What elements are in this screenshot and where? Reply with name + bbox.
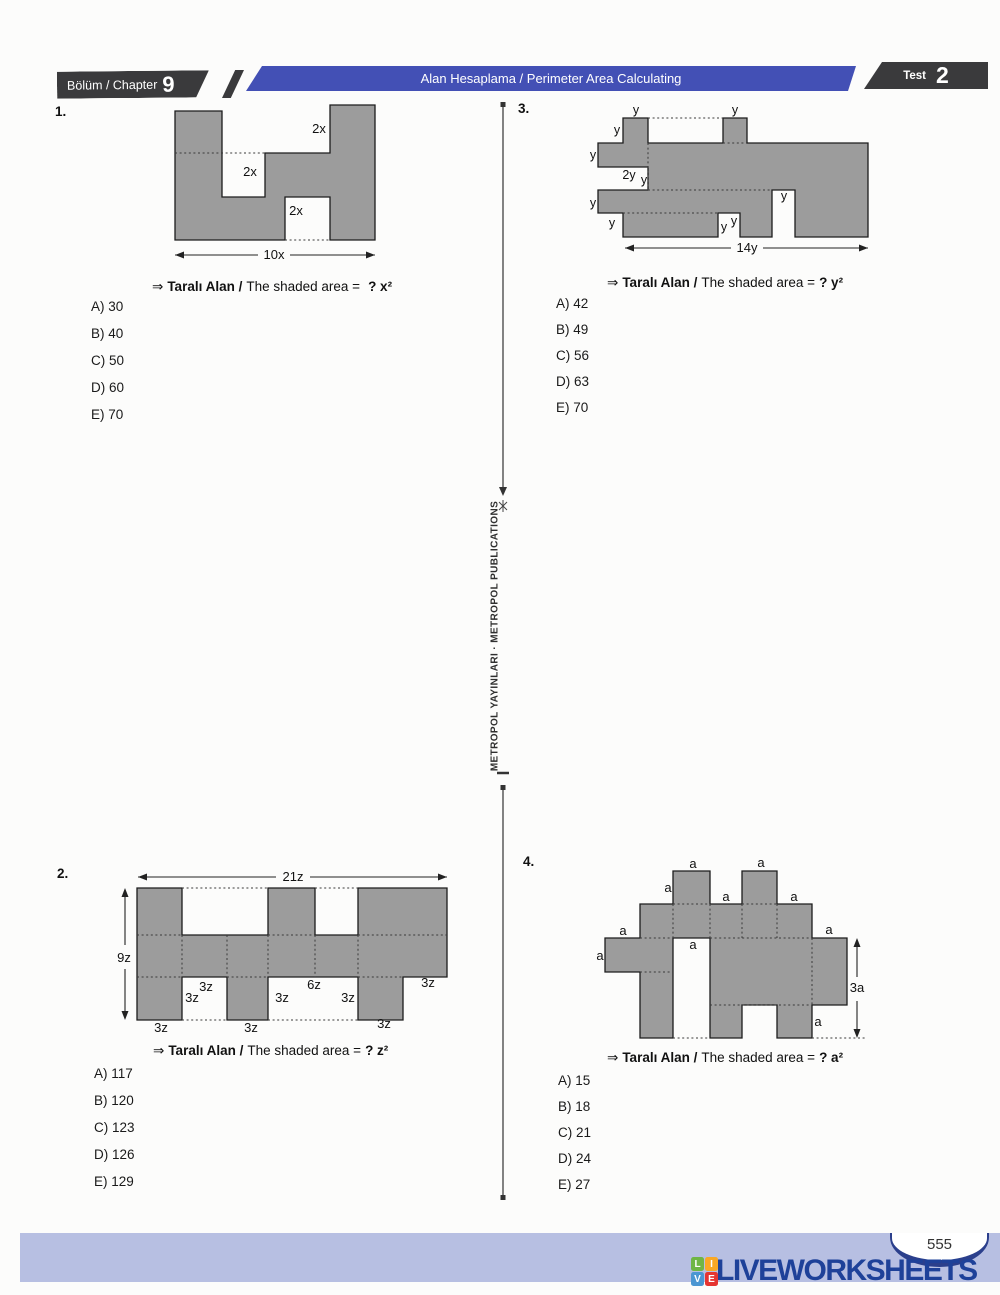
option-e[interactable]: E) 27 [558, 1177, 591, 1203]
svg-text:3z: 3z [341, 990, 355, 1005]
icon-letter-v: V [691, 1272, 704, 1286]
svg-text:a: a [689, 937, 697, 952]
liveworksheets-logo[interactable]: LIVEWORKSHEETS [716, 1254, 977, 1288]
svg-text:a: a [814, 1014, 822, 1029]
arrow-icon: ⇒ [607, 1050, 618, 1065]
question-3-diagram: 14y y y y y 2y y y y y y y [585, 105, 885, 265]
svg-text:y: y [609, 216, 616, 230]
svg-text:3z: 3z [275, 990, 289, 1005]
svg-text:6z: 6z [307, 977, 321, 992]
svg-text:a: a [757, 855, 765, 870]
test-number: 2 [936, 64, 949, 87]
option-a[interactable]: A) 42 [556, 296, 589, 322]
title-banner: Alan Hesaplama / Perimeter Area Calculat… [246, 66, 856, 91]
arrow-icon: ⇒ [153, 1043, 164, 1058]
svg-text:y: y [781, 189, 788, 203]
option-e[interactable]: E) 70 [556, 400, 589, 426]
q1-shaded-polygon [175, 105, 375, 240]
svg-text:2x: 2x [312, 121, 326, 136]
question-2-options: A) 117 B) 120 C) 123 D) 126 E) 129 [94, 1066, 135, 1201]
question-3-options: A) 42 B) 49 C) 56 D) 63 E) 70 [556, 296, 589, 426]
svg-text:2x: 2x [289, 203, 303, 218]
test-label: Test [903, 70, 926, 82]
page-title: Alan Hesaplama / Perimeter Area Calculat… [421, 71, 682, 86]
q2-width-label: 21z [283, 869, 304, 884]
arrow-icon: ⇒ [152, 279, 163, 294]
option-d[interactable]: D) 126 [94, 1147, 135, 1174]
svg-text:2x: 2x [243, 164, 257, 179]
svg-text:a: a [790, 889, 798, 904]
option-d[interactable]: D) 63 [556, 374, 589, 400]
option-c[interactable]: C) 123 [94, 1120, 135, 1147]
svg-text:3z: 3z [377, 1016, 391, 1031]
liveworksheets-icon[interactable]: L I V E [691, 1257, 718, 1286]
svg-text:3z: 3z [154, 1020, 168, 1035]
question-1-prompt: ⇒Taralı Alan /The shaded area =? x² [152, 279, 396, 295]
option-b[interactable]: B) 18 [558, 1099, 591, 1125]
question-4-number: 4. [523, 854, 534, 869]
q4-height-label: 3a [850, 980, 865, 995]
q2-height-label: 9z [117, 950, 131, 965]
publisher-watermark: METROPOL YAYINLARI · METROPOL PUBLICATIO… [490, 501, 501, 771]
option-a[interactable]: A) 30 [91, 299, 124, 326]
worksheet-page: Bölüm / Chapter 9 Alan Hesaplama / Perim… [0, 0, 1000, 1295]
question-4-options: A) 15 B) 18 C) 21 D) 24 E) 27 [558, 1073, 591, 1203]
question-4-prompt: ⇒Taralı Alan /The shaded area =? a² [607, 1050, 847, 1066]
option-c[interactable]: C) 50 [91, 353, 124, 380]
svg-text:a: a [596, 948, 604, 963]
option-a[interactable]: A) 117 [94, 1066, 135, 1093]
option-c[interactable]: C) 21 [558, 1125, 591, 1151]
svg-text:y: y [590, 196, 597, 210]
q1-dimension-arrow: 10x [175, 247, 375, 262]
arrow-icon: ⇒ [607, 275, 618, 290]
q1-width-label: 10x [264, 247, 285, 262]
chapter-number: 9 [162, 73, 174, 95]
question-1-number: 1. [55, 104, 66, 119]
svg-text:3z: 3z [199, 979, 213, 994]
svg-text:a: a [689, 856, 697, 871]
svg-text:y: y [731, 214, 738, 228]
question-1-options: A) 30 B) 40 C) 50 D) 60 E) 70 [91, 299, 124, 434]
question-2-diagram: 21z 9z 3z 3z 3z 6z 3z 3z 3z 3z 3z [100, 865, 460, 1050]
svg-text:y: y [721, 220, 728, 234]
q3-dimension-arrow: 14y [625, 240, 868, 255]
test-banner: Test 2 [864, 62, 988, 89]
svg-text:y: y [614, 123, 621, 137]
svg-text:a: a [825, 922, 833, 937]
svg-text:3z: 3z [244, 1020, 258, 1035]
option-d[interactable]: D) 60 [91, 380, 124, 407]
chapter-banner: Bölüm / Chapter 9 [57, 70, 209, 99]
svg-text:a: a [722, 889, 730, 904]
q2-width-arrow: 21z [138, 869, 447, 884]
svg-text:y: y [732, 103, 739, 117]
page-number: 555 [892, 1236, 987, 1253]
svg-text:2y: 2y [622, 168, 636, 182]
question-3-prompt: ⇒Taralı Alan /The shaded area =? y² [607, 275, 847, 291]
option-a[interactable]: A) 15 [558, 1073, 591, 1099]
question-2-prompt: ⇒Taralı Alan /The shaded area =? z² [153, 1043, 392, 1059]
svg-text:3z: 3z [421, 975, 435, 990]
q2-height-arrow: 9z [117, 888, 131, 1020]
q4-height-arrow: 3a [850, 938, 865, 1038]
option-d[interactable]: D) 24 [558, 1151, 591, 1177]
question-4-diagram: 3a a a a a a a a a a a [560, 855, 890, 1055]
chapter-label: Bölüm / Chapter [67, 77, 157, 92]
slash-decoration [222, 70, 244, 98]
question-1-diagram: 10x 2x 2x 2x [160, 103, 390, 268]
question-2-number: 2. [57, 866, 68, 881]
svg-text:a: a [664, 880, 672, 895]
option-b[interactable]: B) 120 [94, 1093, 135, 1120]
option-b[interactable]: B) 40 [91, 326, 124, 353]
option-e[interactable]: E) 129 [94, 1174, 135, 1201]
option-b[interactable]: B) 49 [556, 322, 589, 348]
svg-text:y: y [590, 148, 597, 162]
svg-text:3z: 3z [185, 990, 199, 1005]
svg-text:a: a [619, 923, 627, 938]
svg-text:y: y [633, 103, 640, 117]
q3-width-label: 14y [737, 240, 758, 255]
svg-text:y: y [641, 173, 648, 187]
option-e[interactable]: E) 70 [91, 407, 124, 434]
option-c[interactable]: C) 56 [556, 348, 589, 374]
q2-shaded-polygon [137, 888, 447, 1020]
icon-letter-l: L [691, 1257, 704, 1271]
